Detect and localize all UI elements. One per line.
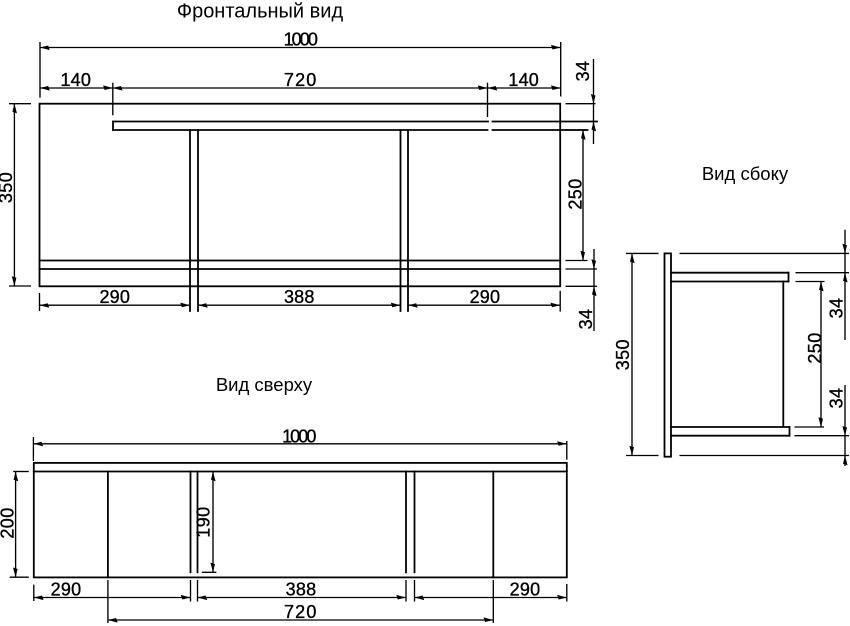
svg-text:290: 290 [510, 580, 541, 600]
svg-text:250: 250 [565, 178, 585, 209]
svg-text:290: 290 [51, 580, 82, 600]
svg-text:140: 140 [508, 70, 539, 90]
svg-text:34: 34 [826, 298, 846, 319]
svg-text:200: 200 [0, 507, 18, 538]
svg-text:290: 290 [470, 287, 501, 307]
svg-text:250: 250 [805, 332, 825, 363]
svg-text:720: 720 [284, 602, 318, 622]
svg-text:Фронтальный вид: Фронтальный вид [177, 1, 344, 23]
svg-text:Вид сверху: Вид сверху [216, 374, 313, 395]
svg-text:720: 720 [284, 70, 318, 90]
svg-text:388: 388 [284, 287, 315, 307]
svg-text:34: 34 [576, 309, 596, 330]
svg-text:1000: 1000 [284, 29, 318, 49]
svg-text:1000: 1000 [282, 426, 316, 446]
svg-text:140: 140 [60, 70, 91, 90]
svg-text:290: 290 [99, 287, 130, 307]
svg-text:34: 34 [826, 388, 846, 409]
svg-text:34: 34 [573, 61, 593, 82]
svg-text:350: 350 [613, 339, 633, 370]
svg-text:388: 388 [286, 580, 317, 600]
svg-text:Вид сбоку: Вид сбоку [702, 163, 789, 184]
svg-text:190: 190 [193, 506, 213, 537]
svg-text:350: 350 [0, 172, 16, 203]
